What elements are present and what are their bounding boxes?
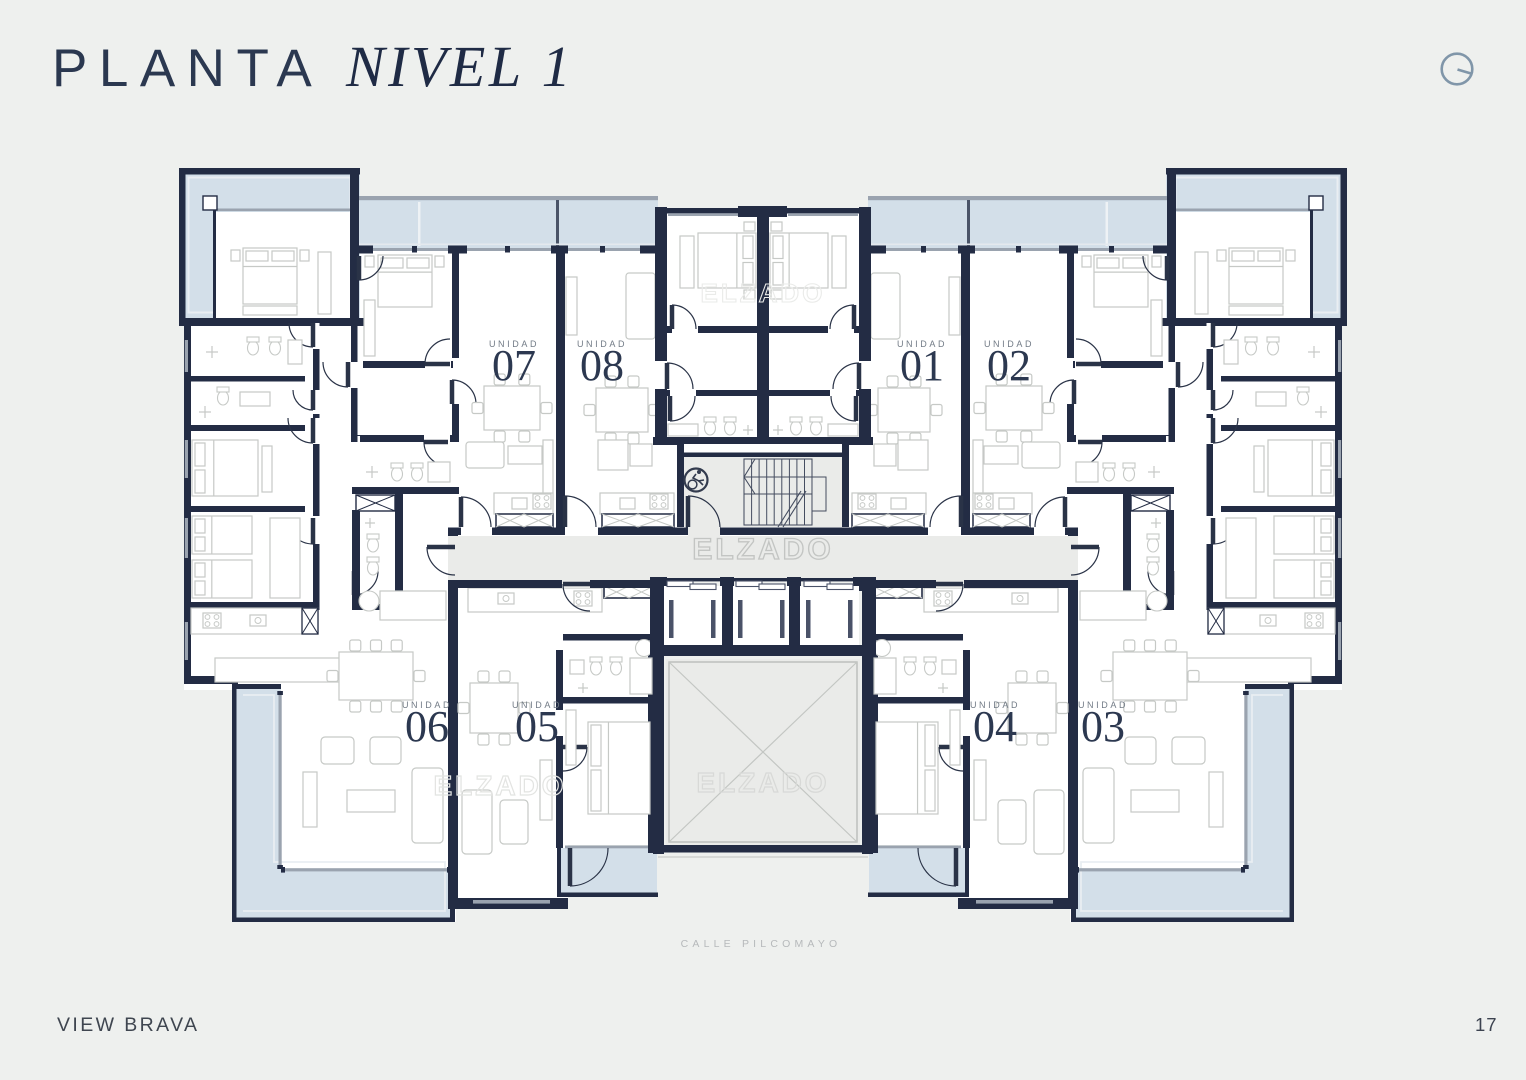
svg-text:CALLE PILCOMAYO: CALLE PILCOMAYO (681, 938, 842, 950)
svg-text:01: 01 (900, 341, 944, 390)
svg-text:VIEW BRAVA: VIEW BRAVA (57, 1014, 199, 1036)
svg-text:04: 04 (973, 702, 1017, 751)
svg-text:ELZADO: ELZADO (433, 770, 566, 801)
svg-text:08: 08 (580, 341, 624, 390)
svg-text:05: 05 (515, 702, 559, 751)
svg-text:06: 06 (405, 702, 449, 751)
svg-text:PLANTA: PLANTA (52, 39, 323, 98)
svg-text:17: 17 (1475, 1014, 1498, 1035)
svg-text:03: 03 (1081, 702, 1125, 751)
svg-text:NIVEL 1: NIVEL 1 (345, 34, 574, 99)
svg-text:ELZADO: ELZADO (692, 533, 833, 566)
svg-text:ELZADO: ELZADO (701, 278, 826, 308)
svg-text:07: 07 (492, 341, 536, 390)
svg-text:02: 02 (987, 341, 1031, 390)
svg-text:ELZADO: ELZADO (696, 767, 829, 798)
